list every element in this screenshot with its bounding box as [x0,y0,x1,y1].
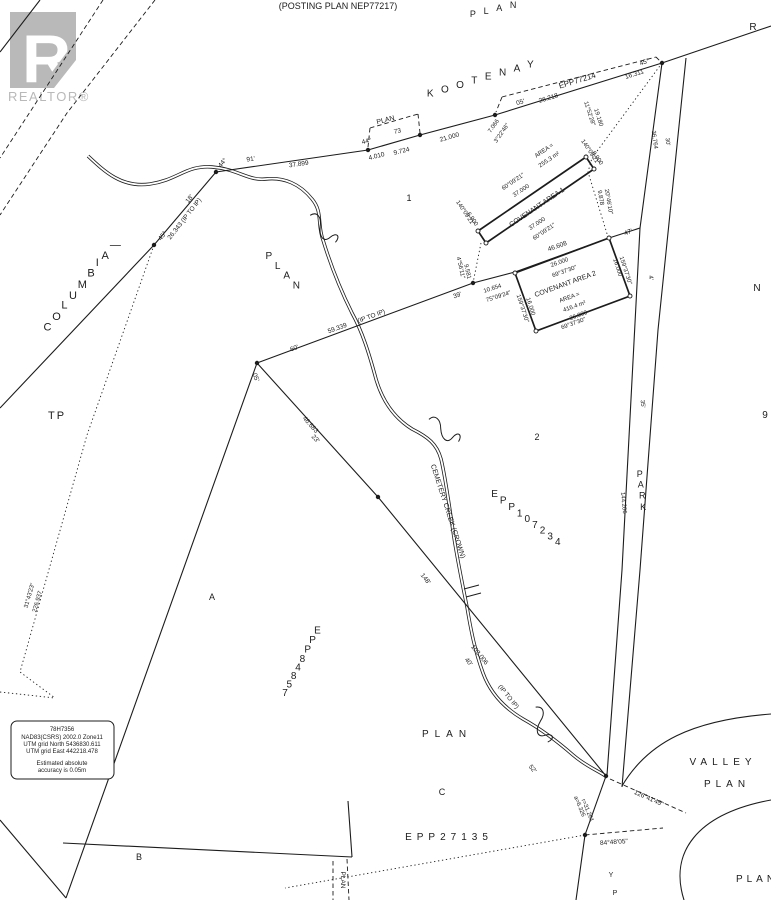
monument-dot [604,774,608,778]
street-letter-p: P [613,890,618,897]
monument-dot [660,61,664,65]
dim-39: 39' [452,291,462,300]
creek-name-label: CEMETERY CREEK (CROWN) [429,464,466,560]
datum-info-box: 78H7356 NAD83(CSRS) 2002.0 Zone11 UTM gr… [11,721,114,779]
dim-23: 23' [310,434,321,445]
info-box-datum: NAD83(CSRS) 2002.0 Zone11 [21,735,103,741]
plan-mid-label: PLAN [422,729,472,740]
monument-dot [376,495,380,499]
west-boundary [0,172,216,408]
info-box-east: UTM grid East 442218.478 [26,749,98,755]
dim-73: 73 [393,127,402,136]
dim-21000: 21.000 [439,131,460,143]
dim-4: 4' [647,275,655,281]
info-box-accuracy-2: accuracy is 0.05m [38,768,86,774]
lot-c: C [439,787,446,797]
realtor-brand-text: REALTOR® [8,89,90,104]
dim-16311: 16.311 [624,68,645,81]
lot-r: R [749,22,756,33]
corner-post [607,236,611,240]
survey-monuments [152,61,664,837]
lot-n: N [753,283,760,294]
plan-number-epp27135: EPP27135 [405,832,493,843]
street-kootenay: KOOTENAY [424,56,545,104]
street-valley: VALLEY [689,757,756,768]
valley-road-lower-curve [680,800,771,900]
info-box-north: UTM grid North 5436830.611 [23,742,101,748]
dotted-west-spur [0,692,55,698]
corner-post [592,167,596,171]
plan-left-label: PLAN [260,244,312,298]
lot-b: B [136,852,142,862]
corner-post [628,294,632,298]
monument-dot [471,281,475,285]
creek-culvert-ticks [464,585,481,597]
dim-05b: 05' [251,372,260,382]
dim-45b: 45° [638,57,650,68]
survey-plan-drawing: R REALTOR® [0,0,771,900]
dim-44b: 44° [361,136,373,146]
park-west-line [607,63,662,775]
dim-46683: 46.683 [301,415,320,435]
plan-top-label: PLAN [468,0,527,22]
lot-a: A [209,592,215,602]
cemetery-creek [88,156,607,777]
dim-91: 91' [246,155,255,163]
monument-dot [366,148,370,152]
park-east-line [622,58,686,787]
lot-1: 1 [406,193,411,203]
dotted-covenant-tie-west [473,243,481,283]
plan-number-epp107234: EPP107234 [486,484,570,553]
dim-47: 47' [623,228,633,237]
corner-post [513,271,517,275]
dim-35: 35' [639,400,646,408]
monument-dot [493,113,497,117]
plan-strip-label: PLAN [339,872,346,889]
dim-1264145: 126°41'45" [633,788,666,808]
plan-bracket-label: PLAN [376,115,395,126]
street-park: PARK [636,468,653,513]
south-boundary [63,801,352,857]
dim-60: 60' [289,344,299,353]
corner-post [484,241,488,245]
lot-2: 2 [534,432,539,442]
dashed-bearing-84 [585,828,663,835]
dim-52: 52' [527,764,538,775]
dim-26343: 26.343 (IP TO IP) [166,197,203,241]
monument-dot [255,361,259,365]
dim-9724: 9.724 [393,146,411,157]
dim-37899: 37.899 [288,160,309,170]
boundary-lines [0,26,771,900]
dim-30: 30' [663,138,670,147]
dim-46608: 46.608 [547,240,568,254]
dim-844805: 84°48'05" [600,837,629,847]
info-box-accuracy-1: Estimated absolute [36,761,88,767]
plan-bottom-right-label: PLAN [736,874,771,885]
street-valley-plan: PLAN [704,779,750,790]
lot-tp: TP [48,410,66,422]
street-columbia: COLUMBIA— [38,231,133,342]
monument-dot [418,133,422,137]
labels: (POSTING PLAN NEP77217) PLAN KOOTENAY CO… [24,0,771,897]
north-boundary [216,26,771,172]
dim-144206: 144.206 [619,492,627,515]
lot-9: 9 [762,410,768,421]
dim-148: 148' [419,572,432,586]
plan-number-epp84857: EPP84857 [278,621,329,703]
creek-path-outer [88,156,607,777]
creek-path-inner [88,156,607,777]
dim-226937: 226.937 [32,590,44,613]
posting-plan-note: (POSTING PLAN NEP77217) [279,1,398,11]
dim-4010: 4.010 [368,151,386,162]
info-box-id: 78H7356 [50,727,75,733]
valley-road-upper-curve [622,714,771,786]
corner-post [534,329,538,333]
covenant-area-1-outline [478,157,594,243]
monument-dot [152,243,156,247]
dim-9878: 9.878 [596,190,605,206]
monument-dot [583,833,587,837]
dim-40: 40' [463,657,474,668]
monument-dot [214,170,218,174]
plan-number-epp77214: EPP77214 [558,71,598,91]
west-long-boundary [0,363,257,898]
street-letter-y: Y [609,872,614,879]
dotted-west-line [20,245,154,698]
corner-post [584,155,588,159]
dim-26218: 26.218 [538,92,559,105]
corner-post [476,229,480,233]
